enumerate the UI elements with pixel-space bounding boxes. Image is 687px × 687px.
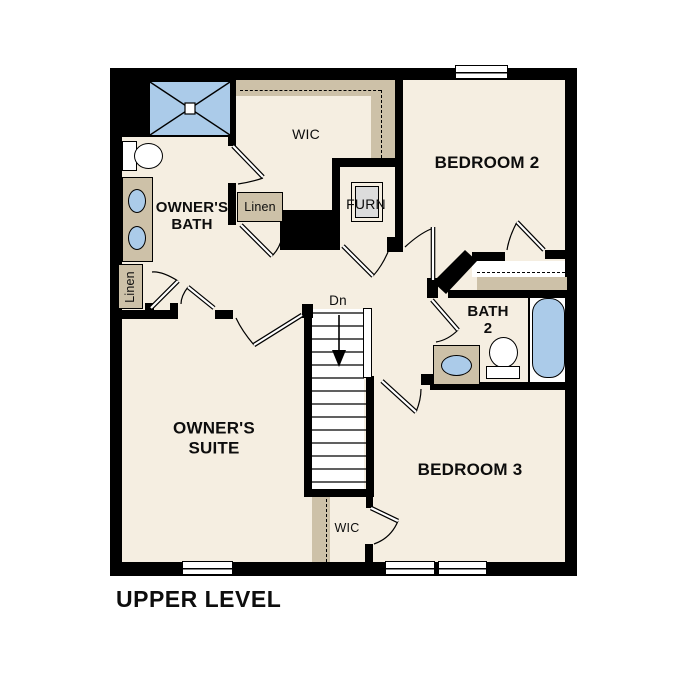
stairs-dn-label: Dn [329,293,347,309]
room-label-owners-suite: OWNER'S SUITE [173,418,255,457]
wall-bedroom2-left-a [395,80,403,160]
wall-stub-vestibule [170,303,178,319]
floor-plan: OWNER'S BATH WIC BEDROOM 2 FURN Linen Li… [0,0,687,687]
room-label-owners-bath: OWNER'S BATH [156,199,228,234]
wall-bedroom2-left-b [395,167,403,237]
outer-wall-right [565,68,577,576]
window [455,65,508,79]
wall-suite-top-b [215,310,233,319]
wic-upper-shelf-top [236,80,395,96]
room-label-furnace: FURN [346,196,386,212]
sink-icon [128,226,146,250]
room-label-linen-left: Linen [123,271,137,303]
stairs-railing [363,308,372,378]
wic-upper-rod-h [240,90,381,93]
shower-icon [148,80,232,137]
wall-stairs-left [304,307,312,497]
outer-wall-left [110,68,122,576]
sink-icon [128,189,146,213]
wic-lower-rod [326,499,329,562]
wall-wic-lower-stub-b [365,544,373,564]
toilet-bowl-icon [134,143,163,169]
wall-top-left-block [110,68,150,137]
stairs-floor [312,309,364,490]
wall-suite-top-a [110,310,178,319]
wall-furn-jamb [387,237,403,252]
bedroom2-closet-shelf [477,277,567,290]
room-label-linen-mid: Linen [244,200,276,214]
window [182,561,233,575]
bathtub-icon [532,298,565,378]
room-label-bedroom2: BEDROOM 2 [435,153,540,173]
room-label-bedroom3: BEDROOM 3 [418,460,523,480]
wall-wic-lower-stub-a [366,497,373,508]
outer-wall-bottom [110,562,577,576]
wall-stairs-right [366,376,374,497]
wall-stairs-bottom [304,489,372,497]
room-label-bath2: BATH 2 [467,303,508,338]
wall-bedroom2-bottom-b [545,250,567,259]
wall-furn-left [332,167,340,247]
window [438,561,487,575]
bedroom2-closet-rod [477,272,565,275]
toilet-bowl-icon [489,337,518,368]
wall-bedroom2-bottom-a [472,252,505,261]
window [385,561,435,575]
wall-tub-niche-line [528,295,530,383]
wall-furn-top [332,158,403,167]
wall-bath-wic-lower [228,183,236,225]
wall-hall-mass [280,210,340,250]
room-label-wic-lower: WIC [335,521,360,535]
room-label-wic-upper: WIC [292,126,320,142]
wic-upper-rod-v [381,90,384,158]
toilet-tank-icon [486,366,520,379]
plan-title: UPPER LEVEL [116,586,281,613]
wall-stub-bath-door [145,303,154,312]
sink-icon [441,355,472,376]
wall-bath2-hinge-block [427,278,438,298]
wall-closet-bottom [448,290,567,298]
